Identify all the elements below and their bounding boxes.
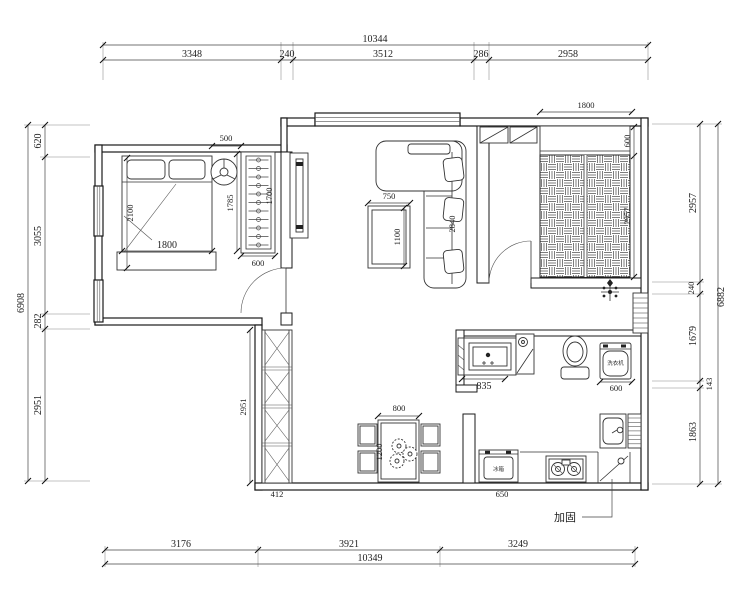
left-wall-window-lower	[94, 280, 103, 322]
bedroom2-furniture	[480, 126, 630, 301]
svg-text:1679: 1679	[688, 326, 699, 346]
vanity-sink	[458, 338, 516, 375]
dining-chair	[421, 451, 440, 473]
floor-plan-drawing: 洗衣机 冰箱	[0, 0, 740, 600]
svg-text:1863: 1863	[688, 422, 699, 442]
fridge: 冰箱	[479, 450, 518, 482]
svg-text:6882: 6882	[716, 287, 727, 307]
svg-text:1800: 1800	[578, 100, 595, 110]
svg-text:3921: 3921	[339, 539, 359, 550]
svg-text:620: 620	[33, 134, 44, 149]
svg-text:500: 500	[220, 133, 233, 143]
bed-bench	[117, 252, 216, 270]
right-wall-duct-hatch	[633, 293, 648, 333]
svg-text:600: 600	[610, 383, 623, 393]
washer-label: 洗衣机	[607, 359, 624, 367]
svg-text:6908: 6908	[16, 293, 27, 313]
tatami-bed	[540, 155, 630, 277]
svg-text:10344: 10344	[363, 34, 388, 45]
dim-right: 2957 240 1679 143 1863 6882	[652, 121, 727, 487]
entry-corner-door	[600, 456, 628, 481]
floor-plan-canvas: 洗衣机 冰箱	[0, 0, 740, 600]
svg-text:10349: 10349	[358, 553, 383, 564]
bedroom1-door	[241, 268, 286, 313]
gas-stove	[546, 456, 586, 482]
dim-top: 10344 3348 240 3512 286 2958	[100, 34, 651, 80]
svg-text:1800: 1800	[157, 240, 177, 251]
svg-text:1785: 1785	[225, 195, 235, 212]
svg-text:3512: 3512	[373, 49, 393, 60]
svg-text:143: 143	[704, 378, 714, 391]
svg-text:2100: 2100	[125, 205, 135, 222]
dining-chair	[358, 424, 377, 446]
svg-text:600: 600	[622, 135, 632, 148]
dining-chair	[421, 424, 440, 446]
kitchen-flue-hatch	[628, 414, 641, 448]
toilet	[561, 336, 589, 379]
svg-text:2958: 2958	[558, 49, 578, 60]
living-room-furniture	[368, 141, 466, 288]
svg-text:286: 286	[474, 49, 489, 60]
sofa-cushion	[443, 249, 464, 274]
kitchen-fixtures: 冰箱	[479, 414, 630, 483]
svg-text:600: 600	[252, 258, 265, 268]
reinforce-label: 加固	[554, 511, 576, 524]
living-room-window	[315, 113, 460, 126]
bedroom2-door	[489, 241, 531, 283]
svg-text:835: 835	[477, 381, 492, 392]
svg-text:650: 650	[496, 489, 509, 499]
dim-left: 620 3055 282 2951 6908	[16, 122, 90, 484]
washing-machine: 洗衣机	[600, 343, 631, 379]
corner-shower-unit	[516, 334, 534, 374]
pillow	[169, 160, 205, 179]
pillow	[127, 160, 165, 179]
left-wall-window-upper	[94, 186, 103, 236]
svg-text:240: 240	[280, 49, 295, 60]
headboard-cabinet	[540, 126, 630, 155]
svg-text:1700: 1700	[264, 188, 274, 205]
ceiling-fan-icon	[211, 159, 237, 185]
hallway-cabinet	[262, 330, 292, 483]
svg-text:750: 750	[383, 191, 396, 201]
svg-text:1100: 1100	[392, 229, 402, 246]
svg-text:2951: 2951	[33, 395, 44, 415]
sofa-cushion	[443, 157, 465, 182]
svg-text:2957: 2957	[688, 193, 699, 213]
svg-text:3055: 3055	[33, 226, 44, 246]
dining-furniture	[358, 420, 440, 482]
svg-text:282: 282	[33, 314, 44, 329]
bedroom1-furniture	[117, 152, 308, 270]
svg-text:412: 412	[271, 489, 284, 499]
svg-text:3249: 3249	[508, 539, 528, 550]
svg-text:2951: 2951	[238, 399, 248, 416]
svg-text:240: 240	[686, 282, 696, 295]
kitchen-sink	[600, 414, 626, 448]
bathroom-fixtures: 洗衣机	[458, 334, 631, 379]
svg-text:1200: 1200	[374, 444, 384, 461]
svg-text:800: 800	[393, 403, 406, 413]
svg-text:3176: 3176	[171, 539, 191, 550]
wardrobe-cabinets	[480, 127, 537, 143]
fridge-label: 冰箱	[493, 465, 505, 473]
svg-text:3348: 3348	[182, 49, 202, 60]
tv-unit	[290, 153, 308, 238]
dim-bottom: 3176 3921 3249 10349	[102, 539, 638, 567]
svg-text:2957: 2957	[622, 208, 632, 225]
svg-text:2840: 2840	[447, 216, 457, 233]
